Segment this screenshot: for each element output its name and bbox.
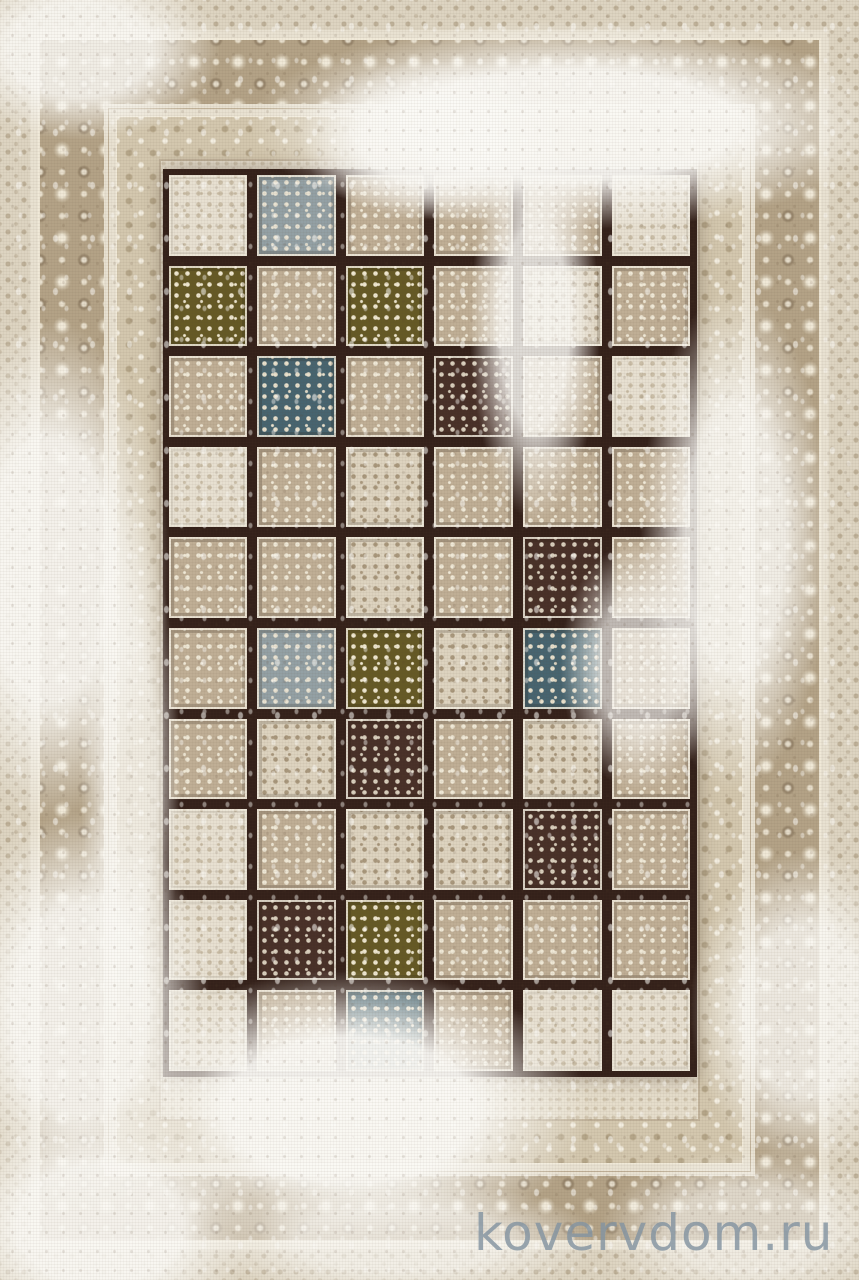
patch-tile-olive-vine (346, 628, 425, 709)
patch-tile-slate-floral (257, 175, 336, 256)
patch-tile-beige-floral (169, 719, 248, 800)
patch-tile-beige-floral (346, 356, 425, 437)
patch-tile-beige-floral (434, 990, 513, 1071)
patch-tile-slate-floral (257, 628, 336, 709)
patch-tile-beige-floral (346, 175, 425, 256)
patch-tile-beige-floral (257, 447, 336, 528)
patch-tile-cream-ornate (434, 809, 513, 890)
rug-main-border (38, 38, 821, 1242)
patch-tile-washed-blank (523, 990, 602, 1071)
patch-tile-beige-floral (612, 266, 691, 347)
rug-outer-guard-border (0, 0, 859, 1280)
patch-tile-cream-ornate (523, 719, 602, 800)
patch-tile-beige-floral (434, 900, 513, 981)
rug-product-photo: kovervdom.ru (0, 0, 859, 1280)
patch-tile-beige-floral (612, 900, 691, 981)
patch-tile-washed-blank (169, 175, 248, 256)
patch-tile-dark-damask (346, 719, 425, 800)
patch-tile-beige-floral (612, 537, 691, 618)
patch-tile-beige-floral (257, 537, 336, 618)
rug-secondary-border (116, 116, 743, 1164)
patch-tile-cream-ornate (346, 447, 425, 528)
patch-tile-washed-blank (612, 175, 691, 256)
patch-tile-cream-ornate (434, 628, 513, 709)
patch-tile-cream-ornate (257, 719, 336, 800)
patch-tile-beige-floral (523, 175, 602, 256)
patch-tile-olive-vine (346, 900, 425, 981)
patch-tile-washed-blank (612, 356, 691, 437)
patch-tile-beige-floral (612, 719, 691, 800)
patch-tile-washed-blank (169, 809, 248, 890)
patch-tile-beige-floral (257, 990, 336, 1071)
patch-tile-dark-damask (257, 900, 336, 981)
patch-tile-washed-blank (169, 900, 248, 981)
patch-tile-beige-floral (434, 266, 513, 347)
patch-tile-beige-floral (434, 719, 513, 800)
patch-tile-blue-diamond (523, 628, 602, 709)
patch-tile-beige-floral (523, 447, 602, 528)
patchwork-grid (163, 169, 697, 1077)
patch-tile-beige-floral (169, 537, 248, 618)
patch-tile-cream-ornate (523, 266, 602, 347)
patch-tile-blue-diamond (257, 356, 336, 437)
patch-tile-washed-blank (169, 447, 248, 528)
rug-field (159, 159, 700, 1121)
watermark-text: kovervdom.ru (474, 1204, 833, 1262)
patch-tile-cream-ornate (346, 537, 425, 618)
patch-tile-blue-diamond (346, 990, 425, 1071)
patch-tile-beige-floral (257, 809, 336, 890)
patch-tile-washed-blank (612, 990, 691, 1071)
patch-tile-beige-floral (169, 356, 248, 437)
patch-tile-beige-floral (257, 266, 336, 347)
patch-tile-beige-floral (523, 356, 602, 437)
patch-tile-olive-vine (169, 266, 248, 347)
patch-tile-dark-damask (434, 356, 513, 437)
rug: kovervdom.ru (0, 0, 859, 1280)
patch-tile-beige-floral (434, 175, 513, 256)
patch-tile-cream-ornate (346, 809, 425, 890)
patch-tile-dark-damask (523, 809, 602, 890)
patch-tile-beige-floral (169, 628, 248, 709)
patch-tile-beige-floral (612, 809, 691, 890)
patch-tile-beige-floral (523, 900, 602, 981)
border-gap-outer (30, 30, 829, 1250)
patch-tile-beige-floral (434, 537, 513, 618)
border-gap-inner (104, 104, 755, 1176)
patch-tile-beige-floral (612, 628, 691, 709)
patch-tile-washed-blank (169, 990, 248, 1071)
patch-tile-beige-floral (612, 447, 691, 528)
patch-tile-beige-floral (434, 447, 513, 528)
patch-tile-olive-vine (346, 266, 425, 347)
patch-tile-dark-damask (523, 537, 602, 618)
